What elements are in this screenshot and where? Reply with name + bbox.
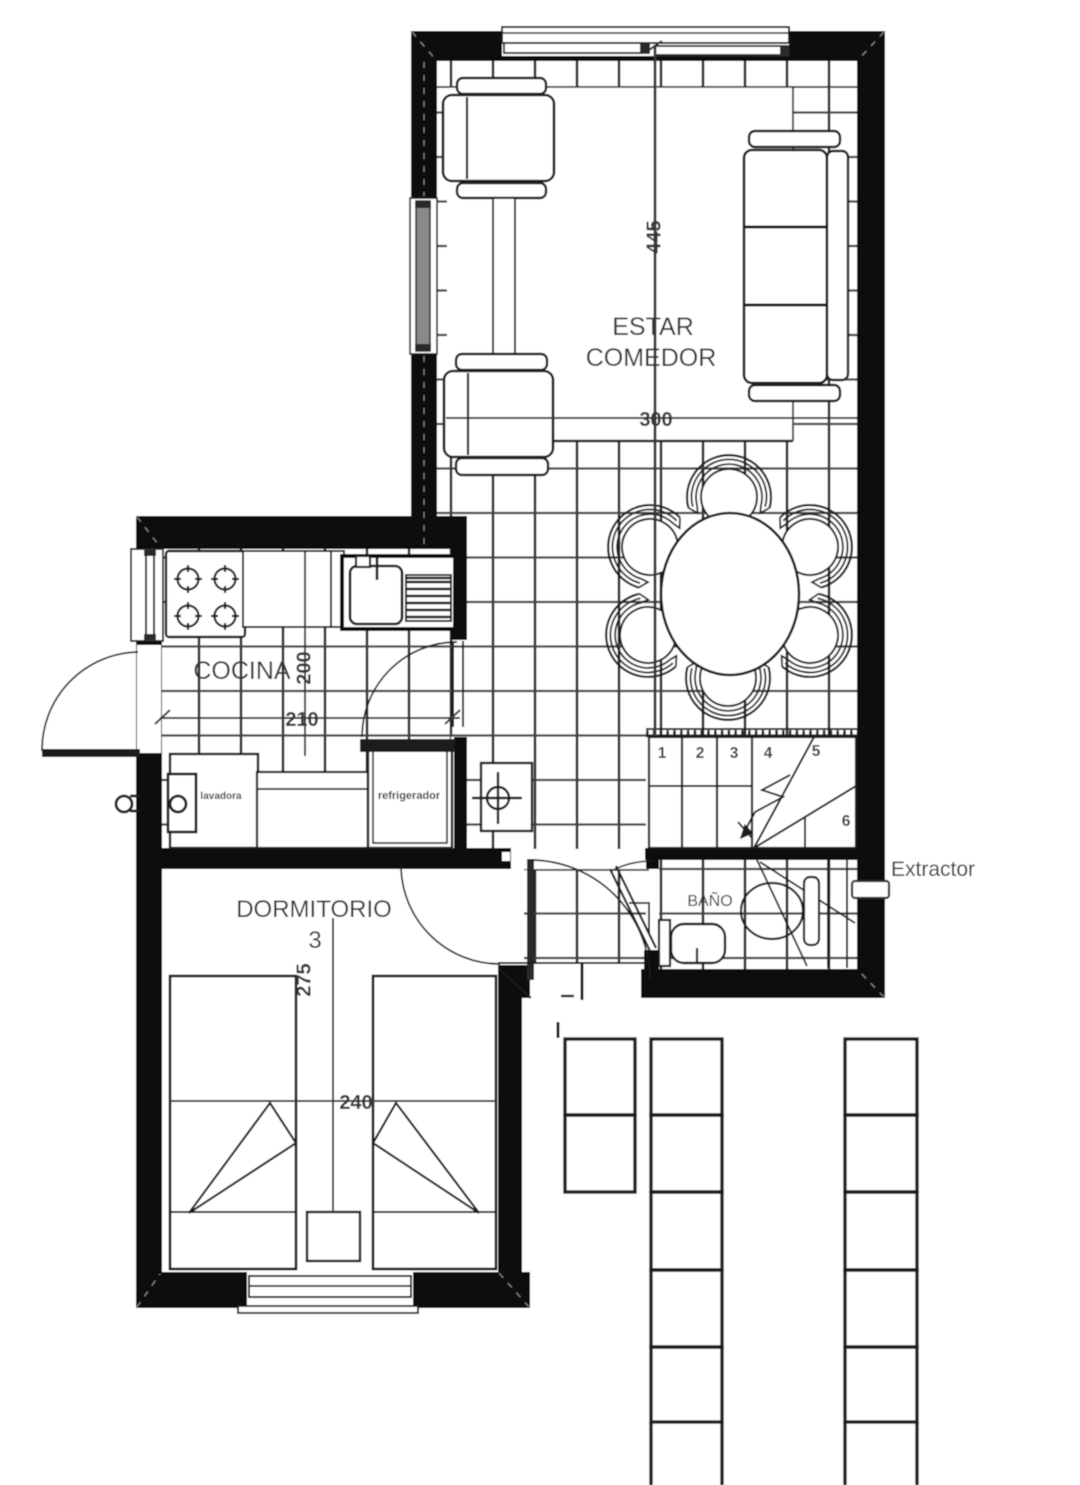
svg-text:200: 200 (293, 651, 315, 684)
svg-text:BAÑO: BAÑO (687, 890, 732, 910)
svg-text:5: 5 (812, 743, 821, 760)
svg-text:6: 6 (842, 813, 851, 830)
svg-text:refrigerador: refrigerador (378, 790, 441, 802)
svg-text:COMEDOR: COMEDOR (586, 344, 717, 372)
svg-text:Extractor: Extractor (891, 858, 975, 881)
svg-text:ESTAR: ESTAR (612, 313, 694, 341)
svg-text:2: 2 (696, 745, 705, 762)
svg-text:210: 210 (285, 709, 318, 731)
svg-text:1: 1 (658, 745, 667, 762)
svg-text:240: 240 (339, 1092, 372, 1114)
svg-text:275: 275 (293, 963, 315, 996)
svg-text:DORMITORIO: DORMITORIO (236, 896, 392, 923)
svg-text:lavadora: lavadora (200, 791, 242, 802)
svg-text:4: 4 (764, 745, 773, 762)
svg-text:3: 3 (308, 927, 321, 954)
svg-text:300: 300 (639, 409, 672, 431)
svg-text:445: 445 (643, 220, 665, 253)
svg-text:COCINA: COCINA (193, 657, 291, 685)
svg-text:3: 3 (730, 745, 739, 762)
